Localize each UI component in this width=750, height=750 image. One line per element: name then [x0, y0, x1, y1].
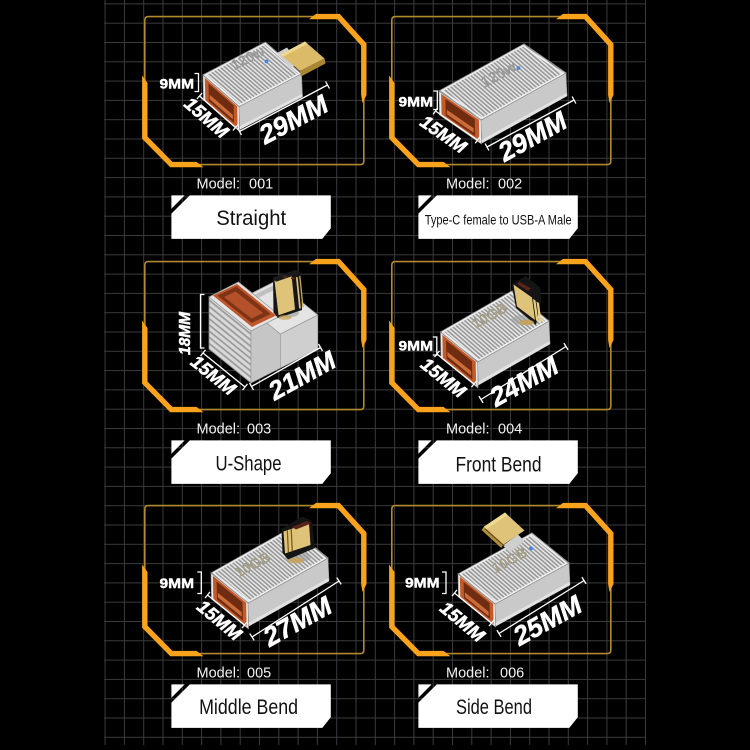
svg-text:006: 006: [500, 665, 524, 681]
svg-text:001: 001: [249, 176, 273, 192]
svg-text:9MM: 9MM: [160, 576, 195, 591]
svg-text:9MM: 9MM: [399, 338, 434, 353]
svg-text:Middle Bend: Middle Bend: [199, 695, 298, 719]
svg-text:Model:: Model:: [446, 665, 490, 681]
svg-text:Front Bend: Front Bend: [456, 453, 542, 477]
svg-text:Model:: Model:: [197, 665, 241, 681]
svg-text:18MM: 18MM: [177, 311, 194, 355]
svg-text:002: 002: [498, 176, 522, 192]
svg-text:Model:: Model:: [446, 176, 490, 192]
svg-text:003: 003: [247, 421, 271, 437]
svg-text:005: 005: [247, 665, 271, 681]
svg-text:Model:: Model:: [446, 421, 490, 437]
svg-text:U-Shape: U-Shape: [216, 452, 282, 476]
svg-text:004: 004: [498, 421, 522, 437]
svg-text:Type-C female to USB-A Male: Type-C female to USB-A Male: [425, 212, 572, 228]
svg-text:Straight: Straight: [216, 206, 286, 230]
svg-text:Model:: Model:: [197, 176, 241, 192]
svg-text:9MM: 9MM: [405, 576, 440, 591]
svg-text:Side Bend: Side Bend: [456, 695, 532, 719]
svg-text:9MM: 9MM: [160, 77, 195, 92]
svg-text:Model:: Model:: [197, 421, 241, 437]
svg-text:9MM: 9MM: [399, 95, 434, 110]
